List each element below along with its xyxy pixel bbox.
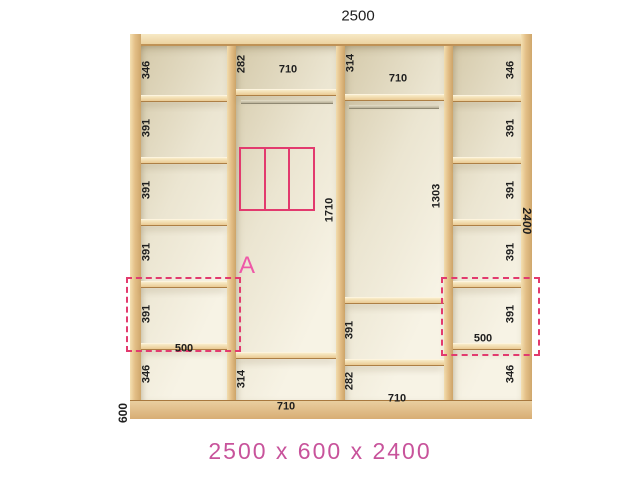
dim-col2-bottom-width: 710: [277, 402, 295, 413]
col2-top-shelf: [236, 89, 336, 96]
drawer-pane: [290, 149, 313, 209]
dim-col4-width: 500: [474, 334, 492, 345]
dim-col4-sec3: 391: [506, 181, 517, 199]
dim-col1-sec6: 346: [142, 365, 153, 383]
wardrobe-diagram: A 2500 2400 600 346 391 391 391 391 346 …: [0, 0, 640, 480]
size-caption: 2500 x 600 x 2400: [0, 438, 640, 465]
col1-shelf: [141, 157, 227, 164]
col3-middle-shelf: [345, 297, 444, 304]
dim-overall-width: 2500: [341, 9, 374, 24]
dim-col4-sec2: 391: [506, 119, 517, 137]
dim-col1-sec4: 391: [142, 243, 153, 261]
wardrobe-top-panel: [130, 34, 532, 46]
dim-col4-sec6: 346: [506, 365, 517, 383]
col1-shelf: [141, 219, 227, 226]
dim-col4-sec4: 391: [506, 243, 517, 261]
wardrobe-base-panel: [130, 400, 532, 419]
col1-shelf: [141, 95, 227, 102]
dim-col3-top-width: 710: [389, 74, 407, 85]
hanging-rod-right: [349, 105, 439, 109]
dim-col2-bottom: 314: [237, 370, 248, 388]
drawer-pane: [241, 149, 266, 209]
dim-col4-sec1: 346: [506, 61, 517, 79]
drawer-unit-symbol-icon: [239, 147, 315, 211]
dim-col3-bottom: 282: [345, 372, 356, 390]
dim-col2-top: 282: [237, 55, 248, 73]
col3-top-shelf: [345, 94, 444, 101]
col4-shelf: [453, 219, 521, 226]
dim-col3-middle: 1303: [432, 184, 443, 208]
dim-col3-bottom-width: 710: [388, 394, 406, 405]
dim-overall-height: 2400: [521, 207, 533, 235]
dim-col1-width: 500: [175, 344, 193, 355]
dim-col1-sec2: 391: [142, 119, 153, 137]
dim-col2-top-width: 710: [279, 65, 297, 76]
drawer-pane: [266, 149, 291, 209]
dim-col4-sec5: 391: [506, 305, 517, 323]
hanging-rod-left: [241, 100, 333, 104]
wardrobe-left-side-panel: [130, 34, 141, 418]
divider-2: [336, 46, 345, 400]
dim-col1-sec3: 391: [142, 181, 153, 199]
dim-col3-top: 314: [346, 54, 357, 72]
dim-col1-sec1: 346: [142, 61, 153, 79]
col4-shelf: [453, 95, 521, 102]
dim-overall-depth: 600: [117, 403, 129, 423]
section-marker-a: A: [239, 254, 255, 278]
dim-col1-sec5: 391: [142, 305, 153, 323]
col3-lower-shelf: [345, 359, 444, 366]
dim-col3-lower: 391: [345, 321, 356, 339]
dim-col2-middle: 1710: [325, 198, 336, 222]
col4-shelf: [453, 157, 521, 164]
col2-bottom-shelf: [236, 352, 336, 359]
